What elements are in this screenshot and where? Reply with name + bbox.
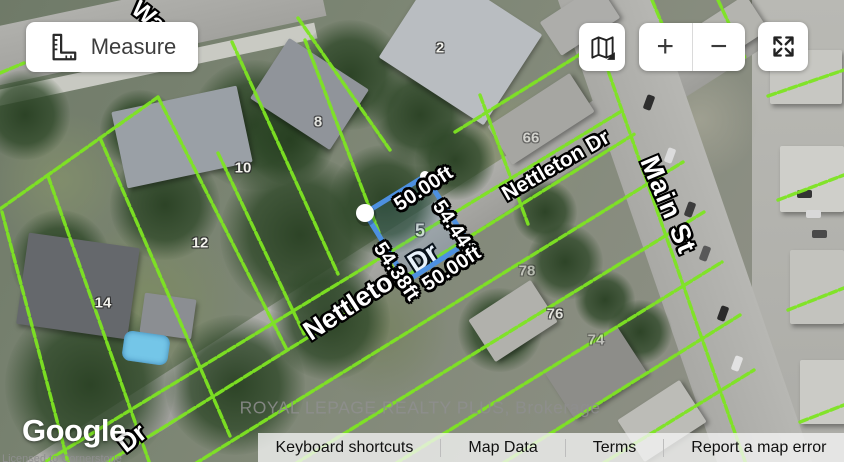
attribution-divider (565, 439, 566, 457)
map-type-button[interactable] (579, 23, 625, 71)
attribution-divider (663, 439, 664, 457)
measure-button-label: Measure (91, 34, 177, 60)
bottom-white-strip (0, 462, 844, 470)
terms-link[interactable]: Terms (585, 439, 645, 457)
zoom-control: + − (639, 23, 745, 71)
map-data-link[interactable]: Map Data (460, 439, 545, 457)
measurement-vertex-handle[interactable] (356, 204, 374, 222)
map-attribution-bar: Keyboard shortcuts Map Data Terms Report… (258, 433, 844, 462)
google-logo: Google (22, 413, 126, 449)
measure-button[interactable]: Measure (26, 22, 198, 72)
keyboard-shortcuts-link[interactable]: Keyboard shortcuts (268, 439, 422, 457)
map-viewport: Wa Nettleton Dr Main St Nettleton Dr Dr … (0, 0, 844, 470)
zoom-in-button[interactable]: + (639, 23, 692, 71)
map-layers-icon (589, 34, 616, 61)
report-map-error-link[interactable]: Report a map error (683, 439, 834, 457)
ruler-icon (48, 32, 78, 62)
fullscreen-button[interactable] (758, 22, 808, 71)
attribution-divider (440, 439, 441, 457)
fullscreen-icon (770, 33, 797, 60)
zoom-out-button[interactable]: − (693, 23, 746, 71)
